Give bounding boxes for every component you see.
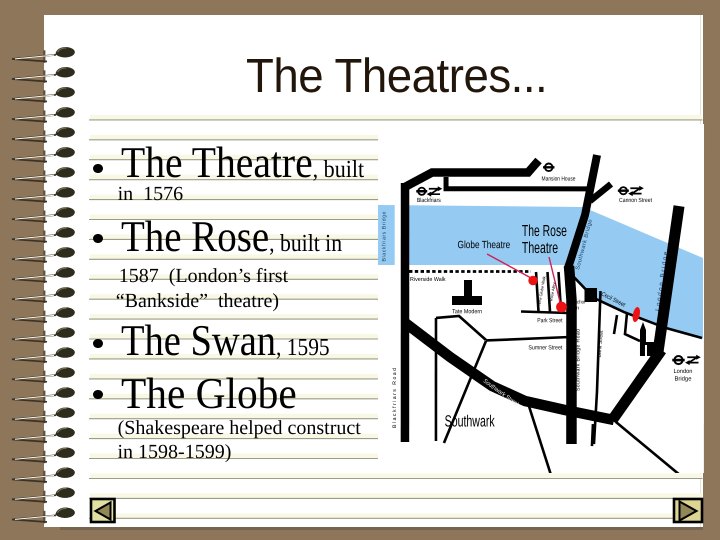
svg-text:Blackfriars Bridge: Blackfriars Bridge xyxy=(382,211,388,261)
svg-text:Southwark Bridge Road: Southwark Bridge Road xyxy=(575,329,581,391)
svg-text:Theatre: Theatre xyxy=(522,240,558,257)
svg-text:Inn: Inn xyxy=(572,306,579,312)
svg-text:Mansion House: Mansion House xyxy=(542,176,577,183)
svg-text:Southwark: Southwark xyxy=(445,413,496,431)
svg-text:Riverside Walk: Riverside Walk xyxy=(410,276,446,283)
svg-text:Tate Modern: Tate Modern xyxy=(452,308,482,315)
svg-text:Blackfriars: Blackfriars xyxy=(417,197,441,204)
svg-text:Blackfriars Road: Blackfriars Road xyxy=(392,368,398,428)
svg-text:Cannon Street: Cannon Street xyxy=(619,197,652,204)
svg-text:Globe Theatre: Globe Theatre xyxy=(458,239,511,251)
svg-text:Bridge: Bridge xyxy=(674,376,692,383)
svg-text:The Rose: The Rose xyxy=(522,223,567,240)
svg-text:Sumner Street: Sumner Street xyxy=(528,344,562,351)
svg-text:Park Street: Park Street xyxy=(537,317,562,324)
svg-text:London: London xyxy=(673,368,692,375)
